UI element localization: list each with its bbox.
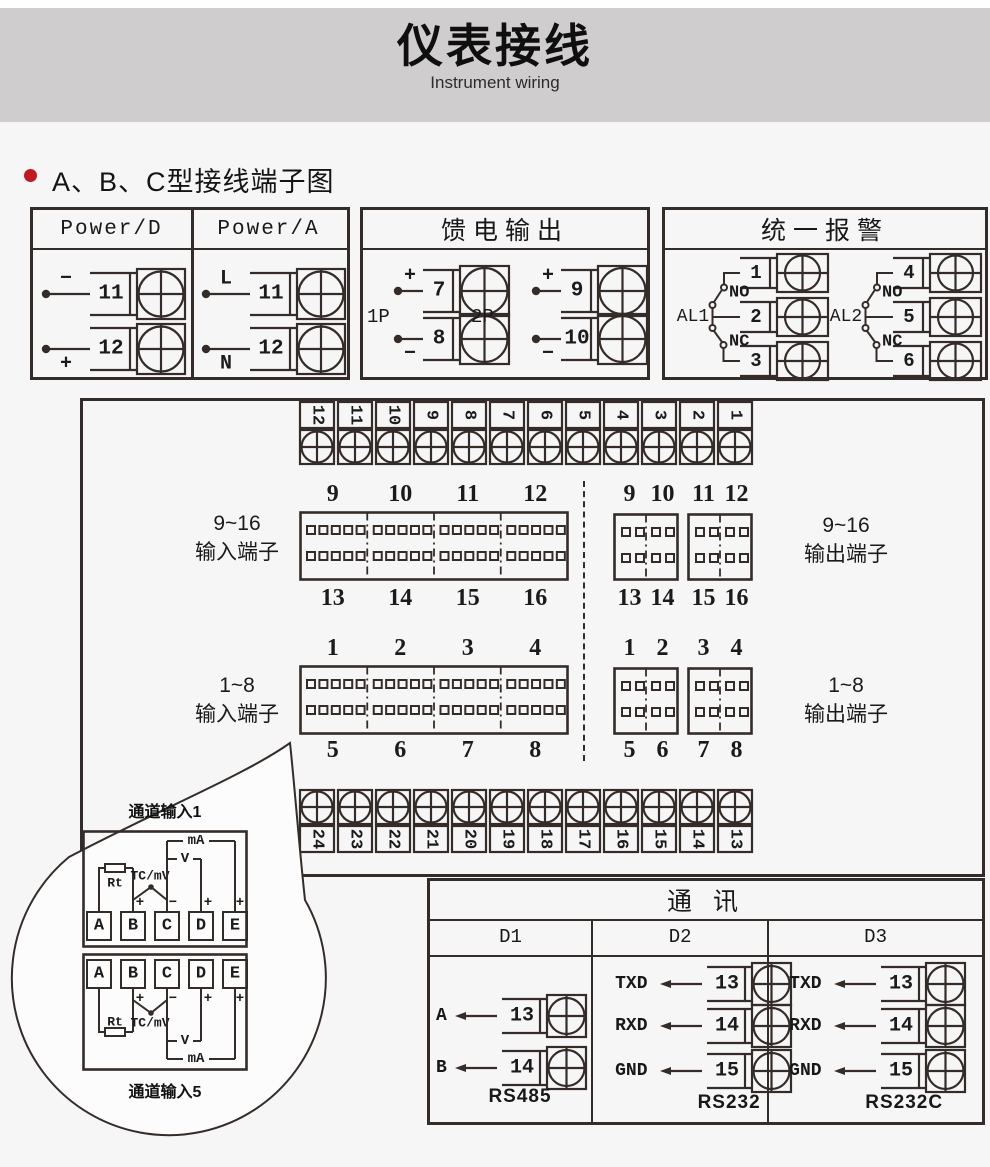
- strip-terminal-number: 2: [688, 410, 707, 420]
- plus-sign: +: [136, 991, 144, 1007]
- screw-terminal-icon: [930, 298, 981, 336]
- comm-column-header: D1: [430, 919, 591, 957]
- strip-terminal-number: 23: [346, 829, 365, 849]
- terminal-number: 15: [889, 1059, 913, 1082]
- comm-terminal-row: TXD13: [769, 963, 965, 1005]
- strip-terminal-cell: 2: [679, 401, 715, 465]
- strip-terminal-number: 6: [536, 410, 555, 420]
- channel-terminal-letter: B: [128, 965, 138, 984]
- polarity-sign: L: [220, 268, 232, 291]
- plus-sign: +: [236, 991, 244, 1007]
- feed-group-label: 1P: [367, 306, 390, 328]
- comm-terminal-block: 13: [881, 963, 965, 1005]
- minus-sign: −: [169, 991, 177, 1007]
- arrow-left-icon: [659, 1020, 703, 1032]
- section-bullet-icon: [24, 169, 37, 182]
- comm-column-header: D2: [593, 919, 767, 957]
- comm-standard-label: RS485: [460, 1086, 580, 1108]
- strip-terminal-number: 17: [574, 829, 593, 849]
- terminal-number: 2: [750, 306, 761, 328]
- strip-terminal-cell: 7: [489, 401, 525, 465]
- strip-terminal-number: 3: [650, 410, 669, 420]
- block-number-label: 8: [720, 737, 753, 764]
- strip-terminal-number: 10: [384, 405, 403, 425]
- screw-terminal-icon: [926, 1050, 965, 1092]
- strip-terminal-cell: 16: [603, 789, 639, 853]
- terminal-number: 8: [433, 328, 446, 351]
- range-label: 9~16: [178, 509, 296, 538]
- block-number-label: 4: [720, 635, 753, 662]
- comm-terminal-row: B14: [430, 1047, 586, 1089]
- relay-contact-icon: [721, 285, 727, 291]
- polarity-sign: −: [404, 343, 416, 366]
- output-side-label: 1~8输出端子: [771, 671, 921, 729]
- terminal-number: 9: [571, 280, 584, 303]
- input-terminal-block: [299, 511, 569, 581]
- polarity-sign: +: [60, 353, 72, 376]
- strip-terminal-cell: 8: [451, 401, 487, 465]
- comm-terminal-row: TXD13: [593, 963, 791, 1005]
- relay-pivot-icon: [863, 325, 869, 331]
- minus-sign: −: [169, 895, 177, 911]
- screw-terminal-icon: [777, 342, 828, 380]
- strip-terminal-cell: 17: [565, 789, 601, 853]
- block-number-label: 16: [502, 585, 570, 612]
- strip-terminal-cell: 11: [337, 401, 373, 465]
- block-number-label: 3: [687, 635, 720, 662]
- strip-terminal-cell: 12: [299, 401, 335, 465]
- block-number-label: 8: [502, 737, 570, 764]
- terminal-number: 6: [903, 350, 914, 372]
- input-block-bottom-labels: 13141516: [299, 585, 569, 612]
- comm-columns: D1A13B14RS485D2TXD13RXD14GND15RS232D3TXD…: [430, 919, 982, 1122]
- tc-mv-label: TC/mV: [130, 869, 169, 884]
- top-white-strip: [0, 0, 990, 8]
- strip-terminal-number: 18: [536, 829, 555, 849]
- output-terminal-block: [687, 513, 753, 581]
- output-block-top-labels: 1234: [613, 635, 753, 662]
- block-number-label: 11: [687, 481, 720, 508]
- comm-terminal-block: 13: [502, 995, 586, 1037]
- communication-box: 通 讯D1A13B14RS485D2TXD13RXD14GND15RS232D3…: [427, 878, 985, 1125]
- arrow-left-icon: [659, 978, 703, 990]
- output-side-label: 9~16输出端子: [771, 511, 921, 569]
- arrow-left-icon: [833, 978, 877, 990]
- block-number-label: 2: [367, 635, 435, 662]
- block-number-label: 6: [367, 737, 435, 764]
- alarm-relay-label: AL1: [677, 307, 709, 327]
- rt-label: Rt: [107, 876, 123, 891]
- comm-terminal-row: GND15: [593, 1050, 791, 1092]
- comm-box-title: 通 讯: [430, 881, 982, 921]
- page-root: 仪表接线 Instrument wiring A、B、C型接线端子图 Power…: [0, 0, 990, 1167]
- channel-terminal-letter: C: [162, 965, 172, 984]
- block-number-label: 10: [367, 481, 435, 508]
- header-banner: 仪表接线 Instrument wiring: [0, 8, 990, 122]
- strip-terminal-number: 11: [346, 405, 365, 425]
- output-terminal-block: [613, 513, 679, 581]
- feed-group-label: 2P: [471, 306, 494, 328]
- comm-terminal-row: RXD14: [593, 1005, 791, 1047]
- terminal-type-label: 输入端子: [178, 538, 296, 567]
- block-number-label: 16: [720, 585, 753, 612]
- power-a-title: Power/A: [190, 210, 347, 248]
- block-number-label: 15: [434, 585, 502, 612]
- terminal-number: 1: [750, 262, 761, 284]
- rt-label: Rt: [107, 1015, 123, 1030]
- block-number-label: 9: [299, 481, 367, 508]
- output-block-bottom-labels: 5678: [613, 737, 753, 764]
- comm-column-body: TXD13RXD14GND15RS232: [593, 958, 767, 1123]
- block-number-label: 6: [646, 737, 679, 764]
- input-side-label: 1~8输入端子: [178, 671, 296, 729]
- arrow-left-icon: [833, 1065, 877, 1077]
- block-number-label: 13: [613, 585, 646, 612]
- alarm-box-title: 统一报警: [665, 210, 985, 250]
- alarm-relay-group: 123AL1NONC: [678, 254, 838, 382]
- comm-column-2: D2TXD13RXD14GND15RS232: [593, 919, 769, 1122]
- terminal-number: 11: [98, 283, 123, 306]
- arrow-left-icon: [659, 1065, 703, 1077]
- terminal-number: 4: [903, 262, 914, 284]
- terminal-number: 13: [715, 972, 739, 995]
- output-terminal-block: [613, 667, 679, 735]
- strip-terminal-number: 4: [612, 410, 631, 420]
- channel-terminal-letter: A: [94, 965, 105, 984]
- strip-terminal-cell: 18: [527, 789, 563, 853]
- feed-output-box: 馈电输出1P+7−82P+9−10: [360, 207, 650, 380]
- channel-input-5-label: 通道输入5: [82, 1078, 248, 1102]
- channel-wiring-diagram: ABCDERtTC/mVVmA+−++: [82, 830, 248, 948]
- relay-contact-icon: [874, 285, 880, 291]
- polarity-sign: −: [60, 268, 72, 291]
- terminal-number: 3: [750, 350, 761, 372]
- ma-label: mA: [188, 833, 205, 849]
- block-number-label: 3: [434, 635, 502, 662]
- terminal-number: 13: [510, 1004, 534, 1027]
- block-number-label: 14: [367, 585, 435, 612]
- screw-terminal-icon: [547, 995, 586, 1037]
- strip-terminal-cell: 19: [489, 789, 525, 853]
- nc-contact-label: NC: [882, 333, 902, 352]
- relay-pivot-icon: [710, 302, 716, 308]
- terminal-number: 14: [889, 1014, 913, 1037]
- terminal-number: 11: [258, 283, 283, 306]
- v-label: V: [181, 851, 190, 867]
- block-number-label: 15: [687, 585, 720, 612]
- range-label: 9~16: [771, 511, 921, 540]
- screw-terminal-icon: [930, 342, 981, 380]
- block-number-label: 12: [502, 481, 570, 508]
- input-block-top-labels: 1234: [299, 635, 569, 662]
- channel-input-5-diagram: ABCDERtTC/mVVmA+−++: [82, 953, 248, 1071]
- comm-terminal-row: GND15: [769, 1050, 965, 1092]
- no-contact-label: NO: [729, 284, 749, 303]
- ma-label: mA: [188, 1051, 205, 1067]
- range-label: 1~8: [178, 671, 296, 700]
- unified-alarm-box: 统一报警123AL1NONC456AL2NONC: [662, 207, 988, 380]
- strip-terminal-cell: 21: [413, 789, 449, 853]
- terminal-row: +12: [38, 322, 188, 376]
- terminal-type-label: 输出端子: [771, 540, 921, 569]
- block-number-label: 7: [434, 737, 502, 764]
- page-subtitle: Instrument wiring: [0, 73, 990, 93]
- signal-label: TXD: [615, 974, 655, 994]
- strip-terminal-number: 15: [650, 829, 669, 849]
- tc-junction-icon: [148, 884, 154, 890]
- signal-label: TXD: [789, 974, 829, 994]
- input-block-top-labels: 9101112: [299, 481, 569, 508]
- top-terminal-strip: 121110987654321: [299, 401, 753, 465]
- terminal-row: L11: [198, 267, 348, 321]
- polarity-sign: N: [220, 353, 232, 376]
- v-label: V: [181, 1033, 190, 1049]
- block-number-label: 5: [613, 737, 646, 764]
- strip-terminal-cell: 22: [375, 789, 411, 853]
- terminal-type-label: 输入端子: [178, 700, 296, 729]
- comm-column-1: D1A13B14RS485: [430, 919, 593, 1122]
- power-column-divider: [191, 210, 194, 377]
- resistor-icon: [105, 864, 125, 872]
- page-title: 仪表接线: [0, 20, 990, 72]
- strip-terminal-cell: 13: [717, 789, 753, 853]
- comm-terminal-row: RXD14: [769, 1005, 965, 1047]
- block-number-label: 11: [434, 481, 502, 508]
- tc-mv-label: TC/mV: [130, 1016, 169, 1031]
- strip-terminal-number: 19: [498, 829, 517, 849]
- terminal-number: 13: [889, 972, 913, 995]
- signal-label: GND: [789, 1061, 829, 1081]
- comm-column-body: A13B14RS485: [430, 958, 591, 1123]
- block-number-label: 12: [720, 481, 753, 508]
- arrow-left-icon: [454, 1010, 498, 1022]
- section-title: A、B、C型接线端子图: [52, 160, 335, 199]
- terminal-row: −11: [38, 267, 188, 321]
- channel-wiring-diagram: ABCDERtTC/mVVmA+−++: [82, 953, 248, 1071]
- channel-terminal-letter: D: [196, 917, 206, 936]
- comm-terminal-block: 15: [881, 1050, 965, 1092]
- plus-sign: +: [236, 895, 244, 911]
- terminal-row: N12: [198, 322, 348, 376]
- channel-terminal-letter: E: [230, 965, 240, 984]
- polarity-sign: +: [542, 265, 554, 288]
- relay-contact-icon: [874, 342, 880, 348]
- strip-terminal-cell: 10: [375, 401, 411, 465]
- strip-terminal-number: 12: [308, 405, 327, 425]
- input-terminal-block: [299, 665, 569, 735]
- terminal-number: 15: [715, 1059, 739, 1082]
- channel-input-1-label: 通道输入1: [82, 798, 248, 822]
- output-block-top-labels: 9101112: [613, 481, 753, 508]
- strip-terminal-number: 22: [384, 829, 403, 849]
- screw-terminal-icon: [598, 266, 647, 316]
- range-label: 1~8: [771, 671, 921, 700]
- terminal-number: 14: [510, 1056, 534, 1079]
- strip-terminal-cell: 14: [679, 789, 715, 853]
- block-number-label: 1: [613, 635, 646, 662]
- channel-input-1-diagram: ABCDERtTC/mVVmA+−++: [82, 830, 248, 948]
- strip-terminal-number: 20: [460, 829, 479, 849]
- relay-contact-icon: [721, 342, 727, 348]
- strip-terminal-cell: 9: [413, 401, 449, 465]
- strip-terminal-number: 14: [688, 829, 707, 849]
- strip-terminal-number: 5: [574, 410, 593, 420]
- comm-column-header: D3: [769, 919, 982, 957]
- strip-terminal-number: 8: [460, 410, 479, 420]
- no-contact-label: NO: [882, 284, 902, 303]
- screw-terminal-icon: [137, 269, 185, 319]
- terminal-number: 10: [564, 328, 589, 351]
- channel-terminal-letter: C: [162, 917, 172, 936]
- power-d-title: Power/D: [33, 210, 190, 248]
- strip-terminal-cell: 1: [717, 401, 753, 465]
- comm-standard-label: RS232C: [844, 1092, 964, 1114]
- screw-terminal-icon: [777, 298, 828, 336]
- nc-contact-label: NC: [729, 333, 749, 352]
- screw-terminal-icon: [297, 324, 345, 374]
- strip-terminal-cell: 5: [565, 401, 601, 465]
- relay-pivot-icon: [710, 325, 716, 331]
- strip-terminal-number: 9: [422, 410, 441, 420]
- terminal-number: 5: [903, 306, 914, 328]
- output-terminal-block: [687, 667, 753, 735]
- block-number-label: 1: [299, 635, 367, 662]
- plus-sign: +: [204, 991, 212, 1007]
- plus-sign: +: [204, 895, 212, 911]
- signal-label: RXD: [789, 1016, 829, 1036]
- terminal-row: +9: [531, 264, 647, 318]
- polarity-sign: +: [404, 265, 416, 288]
- comm-terminal-block: 14: [881, 1005, 965, 1047]
- power-header-row: Power/DPower/A: [33, 210, 347, 250]
- terminal-type-label: 输出端子: [771, 700, 921, 729]
- screw-terminal-icon: [297, 269, 345, 319]
- terminal-row: −10: [531, 312, 647, 366]
- channel-terminal-letter: E: [230, 917, 240, 936]
- channel-terminal-letter: B: [128, 917, 138, 936]
- feed-box-title: 馈电输出: [363, 210, 647, 250]
- comm-terminal-block: 14: [502, 1047, 586, 1089]
- strip-terminal-number: 16: [612, 829, 631, 849]
- block-number-label: 13: [299, 585, 367, 612]
- terminal-number: 12: [98, 338, 123, 361]
- terminal-number: 12: [258, 338, 283, 361]
- signal-label: B: [436, 1058, 450, 1078]
- signal-label: A: [436, 1006, 450, 1026]
- alarm-relay-label: AL2: [830, 307, 862, 327]
- channel-terminal-letter: A: [94, 917, 105, 936]
- block-number-label: 14: [646, 585, 679, 612]
- block-number-label: 2: [646, 635, 679, 662]
- strip-terminal-number: 21: [422, 829, 441, 849]
- polarity-sign: −: [542, 343, 554, 366]
- plus-sign: +: [136, 895, 144, 911]
- comm-column-body: TXD13RXD14GND15RS232C: [769, 958, 982, 1123]
- signal-label: GND: [615, 1061, 655, 1081]
- strip-terminal-cell: 4: [603, 401, 639, 465]
- screw-terminal-icon: [926, 1005, 965, 1047]
- bottom-terminal-strip: 242322212019181716151413: [299, 789, 753, 853]
- power-terminals-box: Power/DPower/A−11+12L11N12: [30, 207, 350, 380]
- signal-label: RXD: [615, 1016, 655, 1036]
- block-number-label: 7: [687, 737, 720, 764]
- block-number-label: 10: [646, 481, 679, 508]
- strip-terminal-cell: 6: [527, 401, 563, 465]
- alarm-relay-group: 456AL2NONC: [831, 254, 990, 382]
- block-number-label: 4: [502, 635, 570, 662]
- comm-terminal-row: A13: [430, 995, 586, 1037]
- block-number-label: 9: [613, 481, 646, 508]
- arrow-left-icon: [833, 1020, 877, 1032]
- input-side-label: 9~16输入端子: [178, 509, 296, 567]
- io-divider-dashed-line: [583, 481, 585, 761]
- channel-terminal-letter: D: [196, 965, 206, 984]
- screw-terminal-icon: [930, 254, 981, 292]
- terminal-number: 14: [715, 1014, 739, 1037]
- strip-terminal-number: 1: [726, 410, 745, 420]
- screw-terminal-icon: [777, 254, 828, 292]
- strip-terminal-number: 13: [726, 829, 745, 849]
- screw-terminal-icon: [926, 963, 965, 1005]
- comm-column-3: D3TXD13RXD14GND15RS232C: [769, 919, 982, 1122]
- relay-pivot-icon: [863, 302, 869, 308]
- screw-terminal-icon: [598, 314, 647, 364]
- terminal-number: 7: [433, 280, 446, 303]
- strip-terminal-cell: 15: [641, 789, 677, 853]
- screw-terminal-icon: [137, 324, 185, 374]
- arrow-left-icon: [454, 1062, 498, 1074]
- strip-terminal-cell: 3: [641, 401, 677, 465]
- output-block-bottom-labels: 13141516: [613, 585, 753, 612]
- strip-terminal-cell: 20: [451, 789, 487, 853]
- screw-terminal-icon: [547, 1047, 586, 1089]
- strip-terminal-number: 7: [498, 410, 517, 420]
